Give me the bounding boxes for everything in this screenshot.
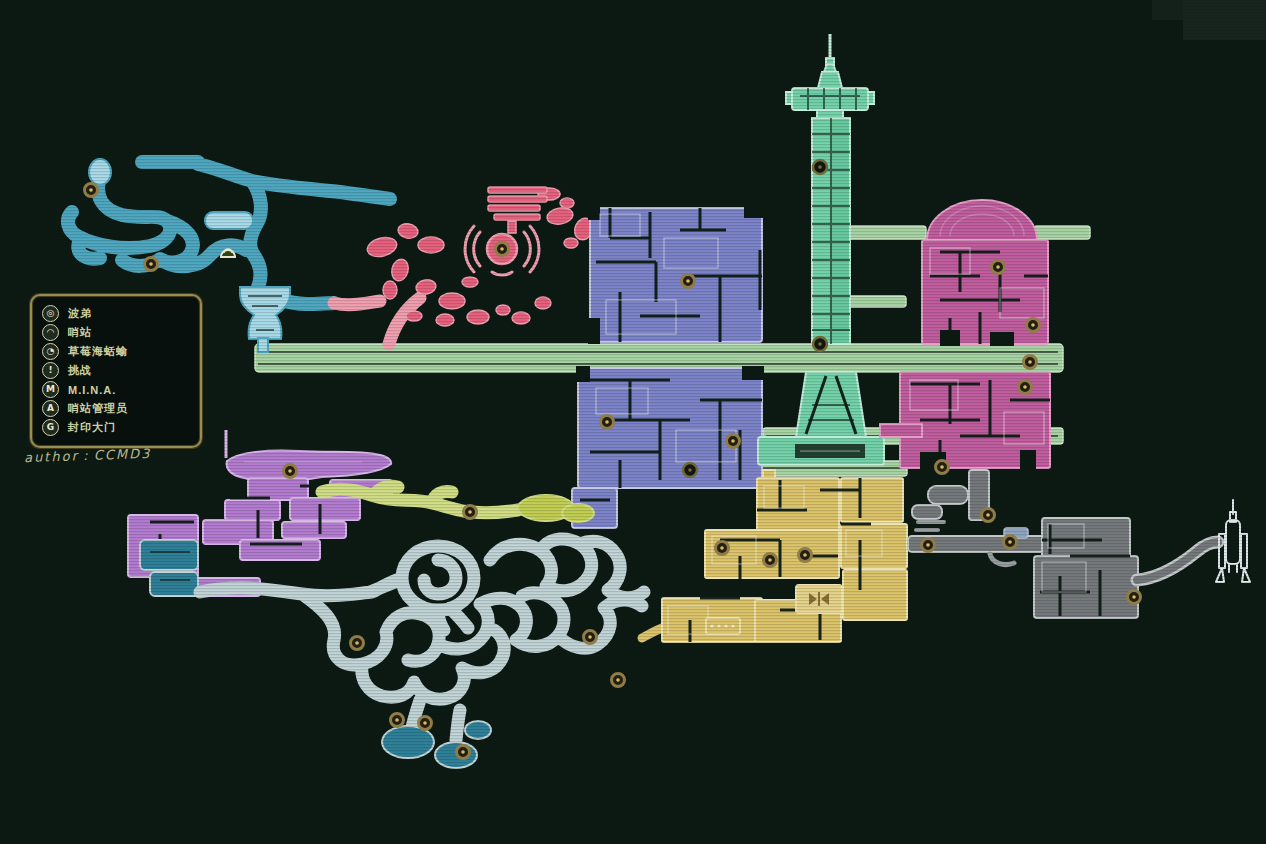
node-marker: [936, 461, 949, 474]
node-marker: [682, 275, 695, 288]
node-marker: [1128, 591, 1141, 604]
sealed-gate-icon: G: [42, 419, 59, 436]
legend-label: 草莓海蛞蝓: [68, 344, 128, 359]
legend-label: 哨站管理员: [68, 401, 128, 416]
legend-item-challenge: ! 挑战: [42, 361, 192, 380]
node-marker: [419, 717, 432, 730]
node-marker: [584, 631, 597, 644]
legend-item-mina: M M.I.N.A.: [42, 380, 192, 399]
node-marker: [391, 714, 404, 727]
legend-label: 封印大门: [68, 420, 116, 435]
legend-item-outpost: ◠ 哨站: [42, 323, 192, 342]
legend-label: M.I.N.A.: [68, 384, 116, 396]
legend-label: 挑战: [68, 363, 92, 378]
node-marker: [601, 416, 614, 429]
node-marker: [716, 542, 729, 555]
world-map-screen: ◎ 波弟 ◠ 哨站 ◔ 草莓海蛞蝓 ! 挑战 M M.I.N.A. A 哨站管理…: [0, 0, 1266, 844]
gate-marker: [813, 160, 827, 174]
node-marker: [982, 509, 995, 522]
node-marker: [1019, 381, 1032, 394]
node-marker: [612, 674, 625, 687]
node-marker: [284, 465, 297, 478]
map-legend: ◎ 波弟 ◠ 哨站 ◔ 草莓海蛞蝓 ! 挑战 M M.I.N.A. A 哨站管理…: [30, 294, 202, 448]
node-marker: [799, 549, 812, 562]
node-marker: [922, 539, 935, 552]
node-marker: [464, 506, 477, 519]
challenge-icon: !: [42, 362, 59, 379]
sea-slug-icon: ◔: [42, 343, 59, 360]
gate-marker: [813, 337, 827, 351]
node-marker: [727, 435, 740, 448]
legend-item-station-manager: A 哨站管理员: [42, 399, 192, 418]
outpost-icon: ◠: [42, 324, 59, 341]
node-marker: [764, 554, 777, 567]
legend-item-sealed-gate: G 封印大门: [42, 418, 192, 437]
legend-label: 哨站: [68, 325, 92, 340]
node-marker: [992, 261, 1005, 274]
legend-item-sea-slug: ◔ 草莓海蛞蝓: [42, 342, 192, 361]
node-marker: [85, 184, 98, 197]
legend-item-buddy: ◎ 波弟: [42, 304, 192, 323]
mina-icon: M: [42, 381, 59, 398]
node-marker: [1027, 319, 1040, 332]
legend-label: 波弟: [68, 306, 92, 321]
gate-marker: [683, 463, 697, 477]
node-marker: [496, 243, 509, 256]
station-manager-icon: A: [42, 400, 59, 417]
node-marker: [351, 637, 364, 650]
node-marker: [1004, 536, 1017, 549]
node-marker: [1024, 356, 1037, 369]
node-marker: [145, 258, 158, 271]
buddy-icon: ◎: [42, 305, 59, 322]
node-marker: [457, 746, 470, 759]
